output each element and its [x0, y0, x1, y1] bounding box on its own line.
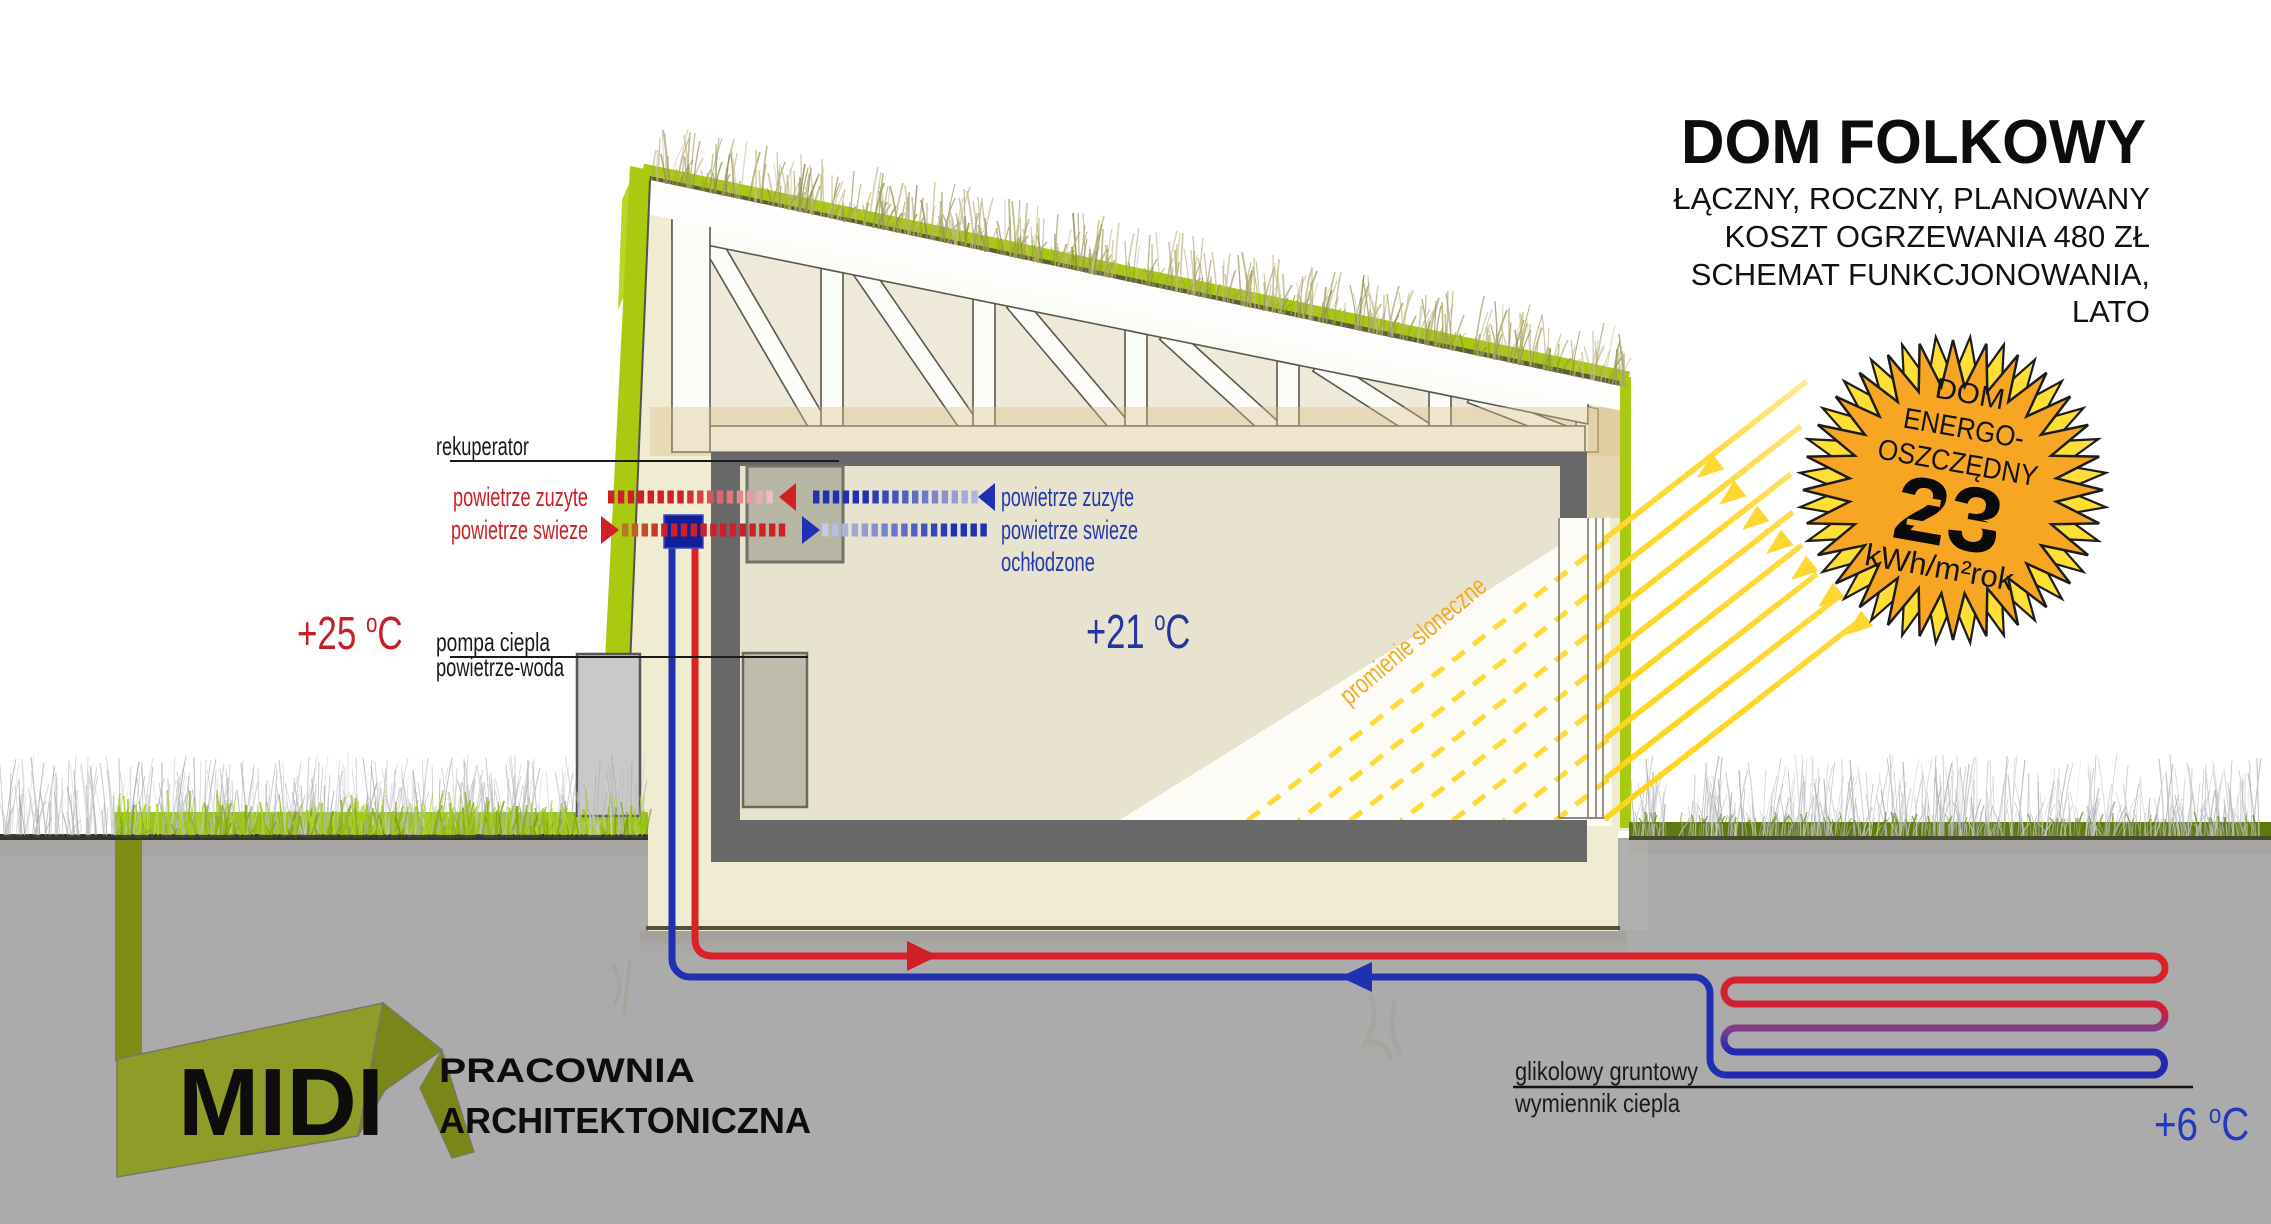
svg-text:wymiennik ciepla: wymiennik ciepla — [1514, 1088, 1680, 1118]
svg-text:+25 oC: +25 oC — [297, 607, 403, 659]
svg-text:powietrze zuzyte: powietrze zuzyte — [453, 482, 588, 512]
svg-text:KOSZT OGRZEWANIA 480 ZŁ: KOSZT OGRZEWANIA 480 ZŁ — [1725, 219, 2151, 254]
svg-text:powietrze zuzyte: powietrze zuzyte — [1001, 482, 1134, 512]
svg-text:rekuperator: rekuperator — [436, 431, 529, 461]
svg-text:DOM FOLKOWY: DOM FOLKOWY — [1681, 108, 2146, 177]
svg-text:MIDI: MIDI — [178, 1049, 384, 1156]
svg-text:PRACOWNIA: PRACOWNIA — [439, 1052, 695, 1090]
svg-text:SCHEMAT FUNKCJONOWANIA,: SCHEMAT FUNKCJONOWANIA, — [1691, 257, 2150, 292]
svg-text:ŁĄCZNY, ROCZNY, PLANOWANY: ŁĄCZNY, ROCZNY, PLANOWANY — [1673, 181, 2150, 216]
svg-text:+21 oC: +21 oC — [1086, 604, 1190, 658]
svg-text:+6 oC: +6 oC — [2154, 1099, 2249, 1150]
svg-text:ochłodzone: ochłodzone — [1001, 547, 1095, 577]
svg-text:powietrze-woda: powietrze-woda — [436, 652, 564, 682]
svg-text:powietrze swieze: powietrze swieze — [451, 515, 588, 545]
svg-text:LATO: LATO — [2072, 294, 2150, 329]
svg-text:ARCHITEKTONICZNA: ARCHITEKTONICZNA — [439, 1100, 811, 1141]
svg-text:glikolowy gruntowy: glikolowy gruntowy — [1515, 1056, 1698, 1086]
svg-text:powietrze swieze: powietrze swieze — [1001, 515, 1138, 545]
